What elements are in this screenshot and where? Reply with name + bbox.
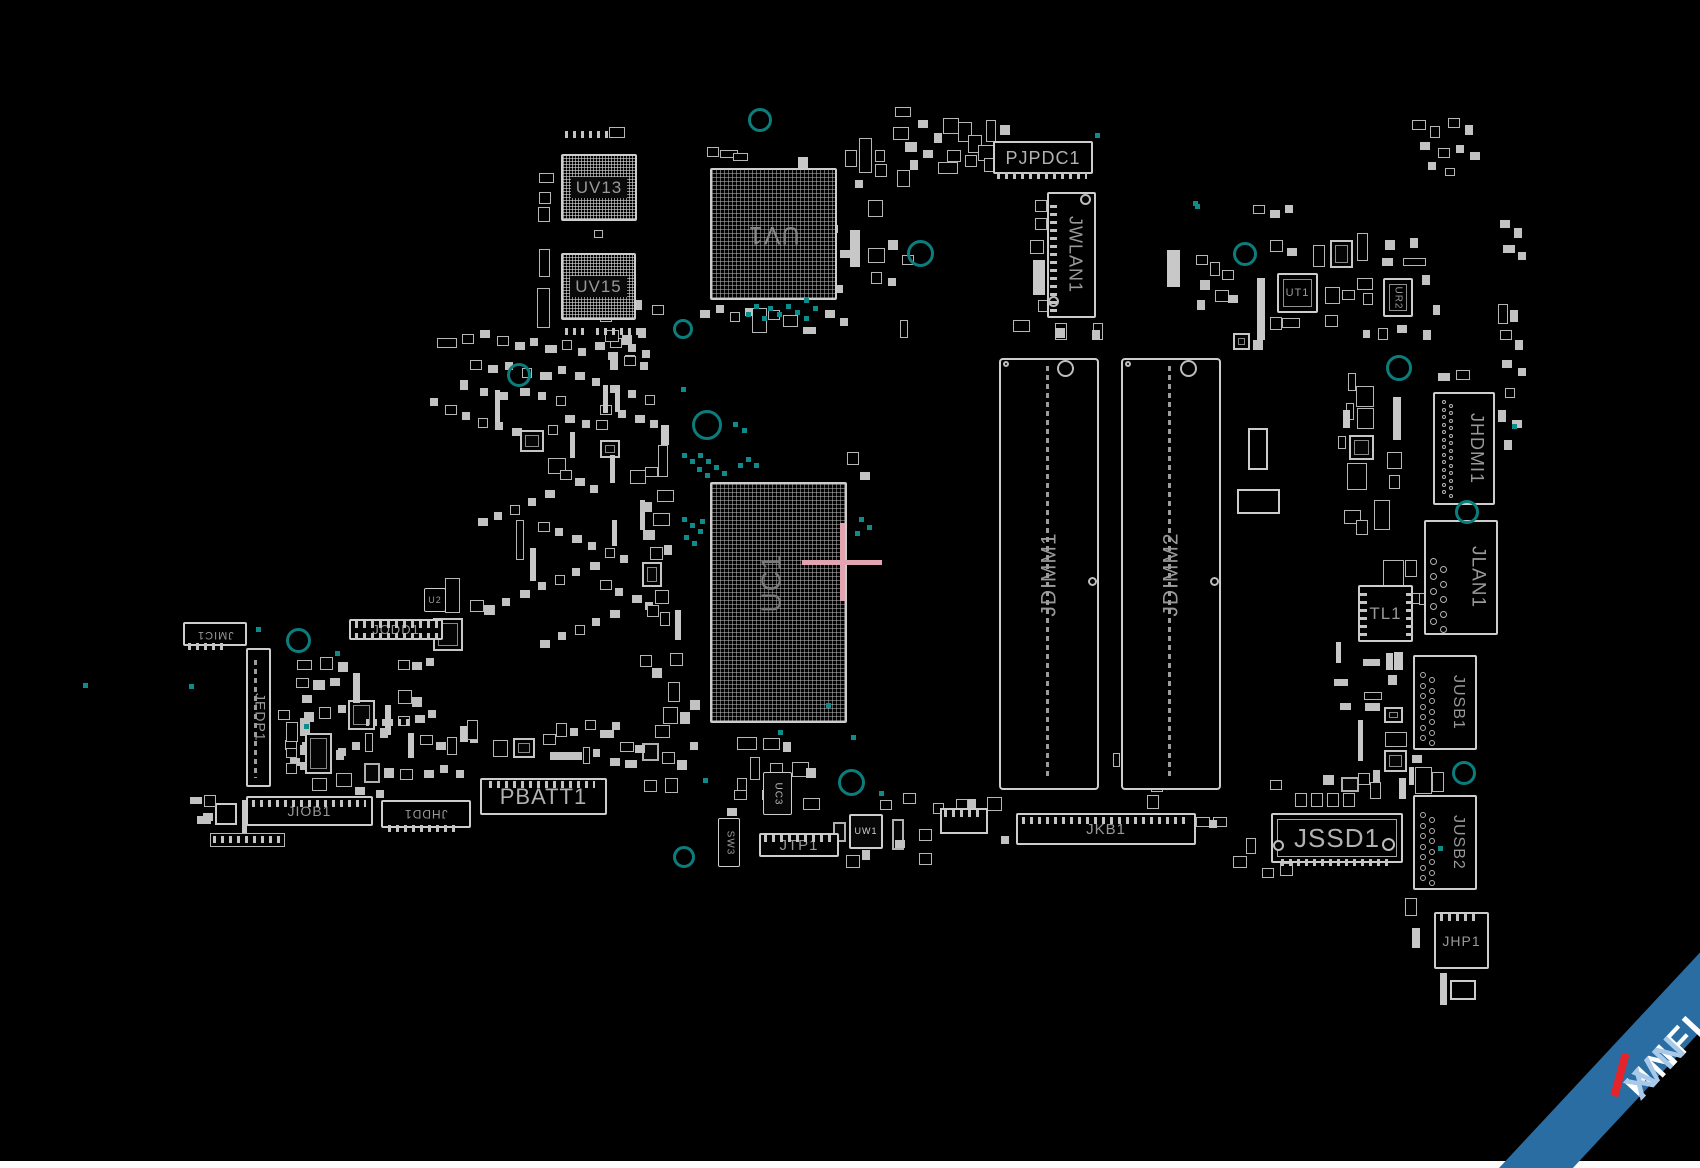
- passive-component: [596, 420, 608, 430]
- via-dot: [335, 651, 340, 656]
- passive-component: [502, 598, 510, 606]
- pin-circle: [1420, 672, 1426, 678]
- via-dot: [813, 306, 818, 311]
- passive-component: [1358, 773, 1370, 785]
- component-uw1: UW1: [849, 814, 883, 849]
- via-dot: [1512, 424, 1517, 429]
- passive-component: [530, 338, 538, 346]
- label-jusb2: JUSB2: [1450, 815, 1466, 870]
- passive-component: [470, 360, 482, 370]
- passive-component: [1503, 245, 1515, 253]
- component-sw3: SW3: [718, 818, 740, 867]
- passive-component: [846, 855, 860, 868]
- via-dot: [698, 453, 703, 458]
- passive-component: [338, 662, 348, 672]
- via-dot: [700, 519, 705, 524]
- passive-component: [462, 334, 474, 344]
- passive-component: [495, 422, 503, 430]
- passive-component: [1399, 778, 1406, 799]
- via-dot: [690, 523, 695, 528]
- passive-component: [197, 816, 211, 824]
- passive-component: [595, 342, 605, 350]
- passive-component: [548, 425, 558, 435]
- passive-component: [480, 330, 490, 338]
- passive-component: [733, 153, 748, 161]
- connector-hole: [1180, 360, 1197, 377]
- passive-component: [845, 150, 857, 167]
- pin-circle: [1420, 844, 1426, 850]
- pin-circle: [1442, 400, 1446, 404]
- passive-component: [868, 248, 885, 263]
- passive-component: [1382, 258, 1393, 266]
- passive-component: [1196, 817, 1210, 827]
- passive-component: [1313, 245, 1325, 267]
- passive-component: [1518, 252, 1526, 260]
- pin-tick-row: [565, 131, 611, 138]
- passive-component: [1323, 775, 1334, 785]
- passive-component: [495, 390, 500, 422]
- pin-circle: [1420, 693, 1426, 699]
- mounting-hole: [673, 319, 693, 339]
- passive-component: [1397, 325, 1407, 333]
- label-jmic1: JMIC1: [197, 629, 234, 640]
- pin-circle: [1420, 683, 1426, 689]
- mounting-hole: [1233, 242, 1257, 266]
- passive-component: [592, 618, 600, 626]
- passive-component: [650, 420, 658, 428]
- label-jusb1: JUSB1: [1450, 675, 1466, 730]
- label-ur2: UR2: [1393, 286, 1403, 309]
- via-dot: [703, 778, 708, 783]
- via-dot: [777, 312, 782, 317]
- label-pbatt1: PBATT1: [500, 786, 588, 808]
- passive-component: [661, 425, 669, 445]
- passive-component: [965, 155, 977, 167]
- via-dot: [738, 463, 743, 468]
- boardview-diagram: HNFIX.VN UV13UV15UV1PJPDC1JWLAN1UT1UR2JH…: [0, 0, 1700, 1168]
- passive-component: [700, 310, 710, 318]
- passive-component: [1358, 720, 1363, 761]
- passive-component: [716, 305, 724, 313]
- passive-component: [330, 678, 340, 686]
- via-dot: [714, 465, 719, 470]
- passive-component: [445, 405, 457, 415]
- component-jdimm2: JDIMM2: [1121, 358, 1221, 790]
- passive-component: [412, 697, 422, 707]
- label-uc1: UC1: [757, 553, 785, 612]
- pin-circle: [1430, 603, 1437, 610]
- mounting-hole: [507, 363, 531, 387]
- passive-component: [384, 768, 394, 778]
- mounting-hole: [1455, 500, 1479, 524]
- passive-component: [1393, 397, 1401, 440]
- passive-component: [1384, 707, 1403, 723]
- passive-component: [806, 768, 816, 778]
- pin-circle: [1429, 828, 1435, 834]
- pin-circle: [1430, 588, 1437, 595]
- passive-component: [947, 150, 961, 162]
- passive-component: [875, 150, 885, 162]
- passive-component: [365, 733, 373, 752]
- passive-component: [1033, 260, 1045, 295]
- via-dot: [733, 422, 738, 427]
- passive-component: [420, 735, 433, 745]
- passive-component: [1285, 205, 1293, 213]
- passive-component: [1389, 475, 1400, 489]
- passive-component: [537, 288, 550, 328]
- passive-component: [1282, 318, 1300, 328]
- passive-component: [622, 335, 632, 345]
- passive-component: [478, 518, 488, 526]
- passive-component: [539, 173, 554, 183]
- via-dot: [705, 473, 710, 478]
- passive-component: [610, 610, 620, 618]
- passive-component: [1363, 293, 1373, 305]
- pin-circle: [1429, 709, 1435, 715]
- passive-component: [412, 662, 422, 670]
- passive-component: [888, 240, 898, 250]
- passive-component: [436, 742, 446, 750]
- passive-component: [986, 120, 996, 142]
- via-dot: [778, 730, 783, 735]
- passive-component: [1420, 142, 1430, 150]
- passive-component: [658, 445, 668, 477]
- passive-component: [1030, 240, 1044, 254]
- passive-component: [642, 562, 662, 587]
- pin-circle: [1429, 688, 1435, 694]
- passive-component: [1325, 315, 1338, 327]
- passive-component: [312, 778, 327, 791]
- passive-component: [875, 164, 887, 177]
- passive-component: [1422, 275, 1430, 285]
- passive-component: [670, 653, 683, 666]
- label-uv1: UV1: [748, 222, 800, 247]
- passive-component: [398, 660, 410, 670]
- via-dot: [804, 316, 809, 321]
- passive-component: [652, 305, 664, 315]
- passive-component: [1237, 489, 1280, 514]
- pin-circle: [1430, 558, 1437, 565]
- mounting-hole: [286, 628, 311, 653]
- passive-component: [1373, 770, 1380, 782]
- passive-component: [860, 472, 870, 480]
- passive-component: [1456, 370, 1470, 380]
- passive-component: [543, 734, 556, 745]
- passive-component: [1356, 520, 1368, 535]
- passive-component: [1412, 755, 1422, 763]
- passive-component: [1438, 373, 1450, 381]
- passive-component: [1253, 340, 1263, 350]
- passive-component: [968, 799, 976, 808]
- passive-component: [426, 658, 434, 666]
- via-dot: [1438, 846, 1443, 851]
- connector-hole: [1210, 577, 1219, 586]
- passive-component: [900, 320, 908, 338]
- passive-component: [462, 412, 470, 420]
- passive-component: [664, 545, 672, 555]
- passive-component: [1270, 317, 1282, 330]
- passive-component: [640, 502, 652, 512]
- passive-component: [1147, 795, 1159, 809]
- passive-component: [352, 742, 360, 750]
- via-dot: [684, 535, 689, 540]
- passive-component: [938, 162, 958, 174]
- passive-component: [642, 350, 650, 358]
- passive-component: [1363, 659, 1380, 666]
- passive-component: [1287, 248, 1297, 256]
- passive-component: [895, 107, 911, 117]
- pin-circle: [1449, 464, 1453, 468]
- passive-component: [1253, 205, 1265, 214]
- passive-component: [550, 752, 582, 760]
- pin-circle: [1449, 494, 1453, 498]
- passive-component: [408, 733, 414, 758]
- passive-component: [355, 787, 365, 795]
- pin-dash-line: [254, 660, 257, 778]
- via-dot: [681, 387, 686, 392]
- passive-component: [1349, 435, 1374, 460]
- passive-component: [1228, 295, 1238, 303]
- passive-component: [313, 680, 325, 690]
- pin-circle: [1442, 475, 1446, 479]
- passive-component: [336, 773, 352, 787]
- passive-component: [555, 528, 563, 536]
- passive-component: [538, 207, 550, 222]
- passive-component: [1001, 836, 1009, 844]
- passive-component: [1347, 463, 1367, 490]
- passive-component: [610, 360, 618, 370]
- pin-circle: [1442, 423, 1446, 427]
- pin-tick-row: [944, 810, 984, 817]
- label-tl1: TL1: [1369, 605, 1401, 622]
- pin-circle: [1420, 833, 1426, 839]
- passive-component: [1388, 675, 1397, 685]
- passive-component: [895, 840, 905, 848]
- pin-tick-row: [188, 643, 226, 650]
- passive-component: [215, 803, 237, 825]
- via-dot: [855, 531, 860, 536]
- passive-component: [1412, 928, 1420, 948]
- pin-circle: [1442, 453, 1446, 457]
- passive-component: [1113, 753, 1120, 767]
- pin-circle: [1442, 415, 1446, 419]
- component-ur2: UR2: [1383, 278, 1413, 317]
- passive-component: [447, 737, 457, 755]
- via-dot: [1095, 133, 1100, 138]
- passive-component: [1167, 250, 1180, 287]
- passive-component: [690, 742, 698, 750]
- pin-circle: [1442, 468, 1446, 472]
- mounting-hole: [838, 769, 865, 796]
- passive-component: [286, 748, 297, 758]
- pin-circle: [1420, 735, 1426, 741]
- pin-circle: [1442, 408, 1446, 412]
- via-dot: [851, 735, 856, 740]
- via-dot: [795, 310, 800, 315]
- mounting-hole: [748, 108, 772, 132]
- passive-component: [763, 738, 780, 750]
- passive-component: [539, 249, 550, 277]
- passive-component: [1409, 767, 1414, 785]
- pin-circle: [1442, 490, 1446, 494]
- passive-component: [467, 720, 478, 740]
- mounting-hole: [907, 240, 934, 267]
- passive-component: [1035, 218, 1047, 230]
- passive-component: [1196, 255, 1208, 265]
- passive-component: [847, 452, 859, 465]
- passive-component: [1518, 368, 1526, 376]
- passive-component: [1343, 410, 1350, 428]
- connector-hole: [1088, 577, 1097, 586]
- passive-component: [338, 705, 346, 713]
- passive-component: [470, 600, 484, 612]
- passive-component: [594, 230, 603, 238]
- passive-component: [1515, 340, 1523, 350]
- via-dot: [859, 517, 864, 522]
- passive-component: [677, 760, 687, 770]
- passive-component: [620, 555, 628, 563]
- label-jhdd1: JHDD1: [404, 808, 448, 820]
- pin-tick-row: [1281, 859, 1393, 866]
- passive-component: [1412, 120, 1426, 130]
- label-jhp1: JHP1: [1442, 934, 1480, 948]
- passive-component: [660, 612, 670, 626]
- passive-component: [1438, 148, 1450, 158]
- via-dot: [83, 683, 88, 688]
- passive-component: [1343, 793, 1355, 807]
- via-dot: [746, 457, 751, 462]
- pin-circle: [1430, 618, 1437, 625]
- passive-component: [635, 745, 645, 753]
- passive-component: [1365, 703, 1380, 711]
- passive-component: [605, 548, 615, 558]
- passive-component: [538, 522, 550, 532]
- passive-component: [868, 200, 883, 217]
- passive-component: [278, 710, 290, 720]
- component-jhdd1: JHDD1: [381, 800, 471, 828]
- passive-component: [610, 455, 615, 483]
- passive-component: [558, 366, 566, 374]
- passive-component: [1405, 898, 1417, 916]
- label-u2: U2: [428, 596, 442, 605]
- passive-component: [1342, 290, 1355, 300]
- passive-component: [825, 310, 835, 318]
- label-uw1: UW1: [855, 827, 878, 836]
- passive-component: [903, 793, 916, 804]
- passive-component: [919, 829, 932, 841]
- pin-circle: [1429, 730, 1435, 736]
- connector-hole: [1003, 361, 1009, 367]
- passive-component: [625, 760, 637, 768]
- passive-component: [456, 770, 464, 778]
- passive-component: [338, 748, 346, 756]
- passive-component: [400, 769, 413, 780]
- passive-component: [1403, 258, 1426, 266]
- passive-component: [1433, 305, 1440, 315]
- passive-component: [1210, 262, 1220, 276]
- passive-component: [1386, 653, 1393, 670]
- passive-component: [609, 127, 625, 138]
- passive-component: [575, 625, 585, 635]
- component-pjpdc1: PJPDC1: [993, 141, 1093, 174]
- passive-component: [840, 250, 850, 258]
- connector-hole: [1080, 194, 1091, 205]
- passive-component: [575, 478, 585, 486]
- passive-component: [592, 378, 600, 386]
- pin-tick-column: [1050, 200, 1057, 312]
- pin-tick-row: [565, 328, 589, 335]
- component-uv15: UV15: [561, 253, 636, 320]
- pin-circle: [1442, 438, 1446, 442]
- passive-component: [662, 752, 675, 764]
- passive-component: [1500, 220, 1510, 228]
- pin-circle: [1440, 626, 1447, 633]
- label-uv15: UV15: [570, 276, 627, 297]
- pin-tick-column: [1360, 590, 1367, 636]
- label-jwlan1: JWLAN1: [1067, 216, 1085, 293]
- passive-component: [539, 192, 551, 204]
- passive-component: [515, 342, 525, 350]
- passive-component: [1200, 280, 1210, 290]
- component-uv1: UV1: [710, 168, 837, 300]
- passive-component: [840, 318, 848, 326]
- passive-component: [628, 390, 636, 398]
- passive-component: [897, 170, 910, 187]
- passive-component: [538, 582, 546, 590]
- passive-component: [528, 498, 536, 506]
- passive-component: [445, 578, 460, 613]
- passive-component: [593, 749, 600, 757]
- passive-component: [1334, 679, 1348, 686]
- passive-component: [364, 763, 380, 783]
- component-ut1: UT1: [1277, 273, 1318, 313]
- via-dot: [706, 459, 711, 464]
- passive-component: [204, 795, 216, 807]
- passive-component: [1338, 436, 1346, 449]
- passive-component: [1385, 240, 1395, 250]
- pin-circle: [1442, 460, 1446, 464]
- connector-hole: [1382, 838, 1395, 851]
- passive-component: [750, 757, 760, 780]
- passive-component: [663, 707, 678, 724]
- passive-component: [680, 712, 690, 724]
- pin-circle: [1449, 419, 1453, 423]
- passive-component: [615, 588, 623, 596]
- label-pjpdc1: PJPDC1: [1005, 149, 1080, 167]
- passive-component: [1055, 328, 1065, 338]
- passive-component: [1415, 767, 1432, 794]
- via-dot: [742, 428, 747, 433]
- passive-component: [1384, 750, 1407, 772]
- component-jssd1: JSSD1: [1271, 813, 1403, 863]
- passive-component: [497, 336, 509, 346]
- passive-component: [734, 790, 747, 800]
- pin-tick-row: [1022, 817, 1188, 824]
- passive-component: [1262, 868, 1274, 878]
- pin-dash-line: [1046, 366, 1049, 780]
- via-dot: [762, 316, 767, 321]
- passive-component: [1456, 145, 1464, 153]
- passive-component: [645, 467, 658, 477]
- passive-component: [428, 710, 436, 718]
- passive-component: [987, 797, 1002, 811]
- passive-component: [630, 470, 646, 484]
- passive-component: [1514, 228, 1522, 238]
- passive-component: [1357, 233, 1368, 261]
- passive-component: [1430, 126, 1440, 138]
- passive-component: [1270, 780, 1282, 790]
- passive-component: [583, 747, 590, 764]
